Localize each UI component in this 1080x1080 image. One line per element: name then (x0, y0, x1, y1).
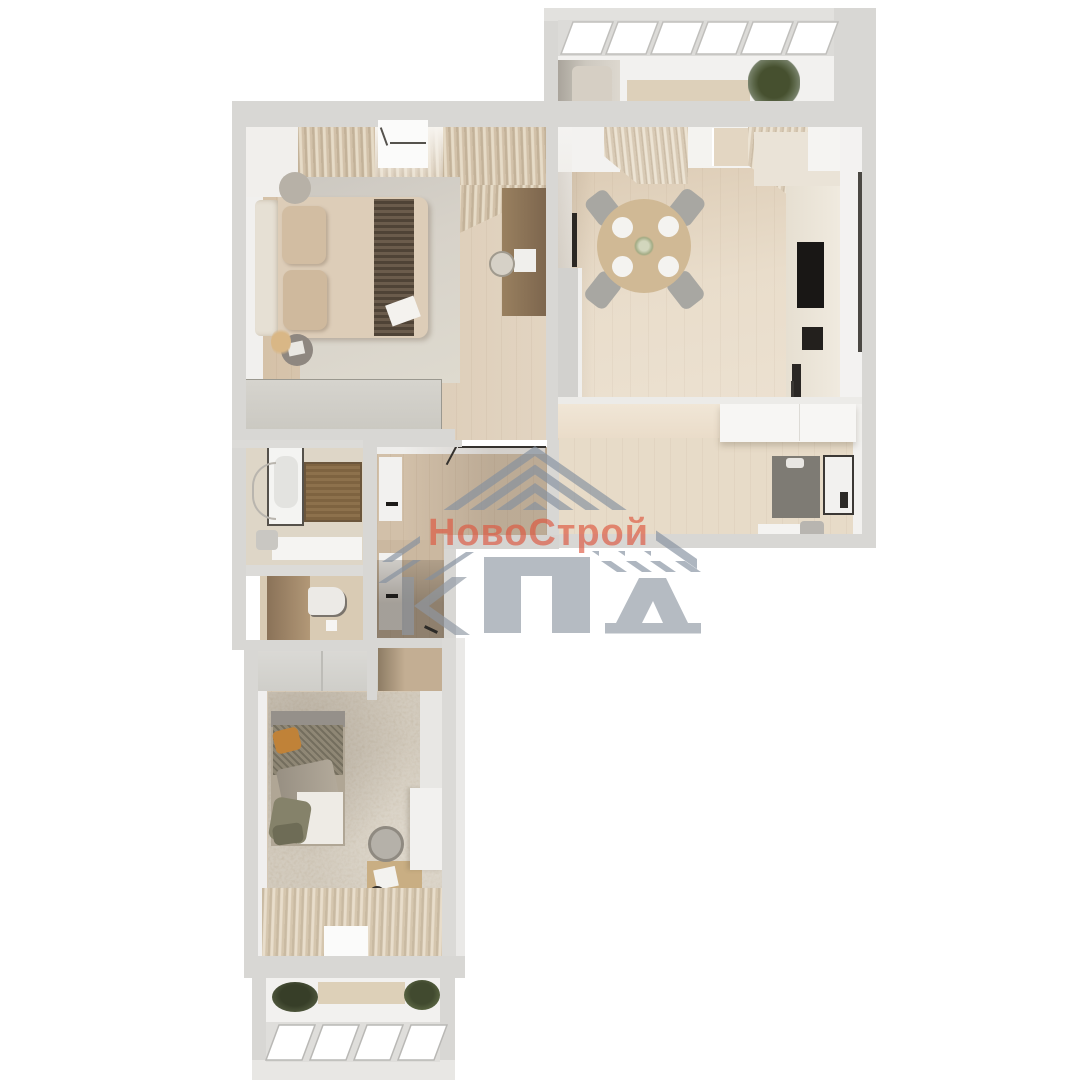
svg-text:НовоСтрой: НовоСтрой (428, 512, 648, 554)
